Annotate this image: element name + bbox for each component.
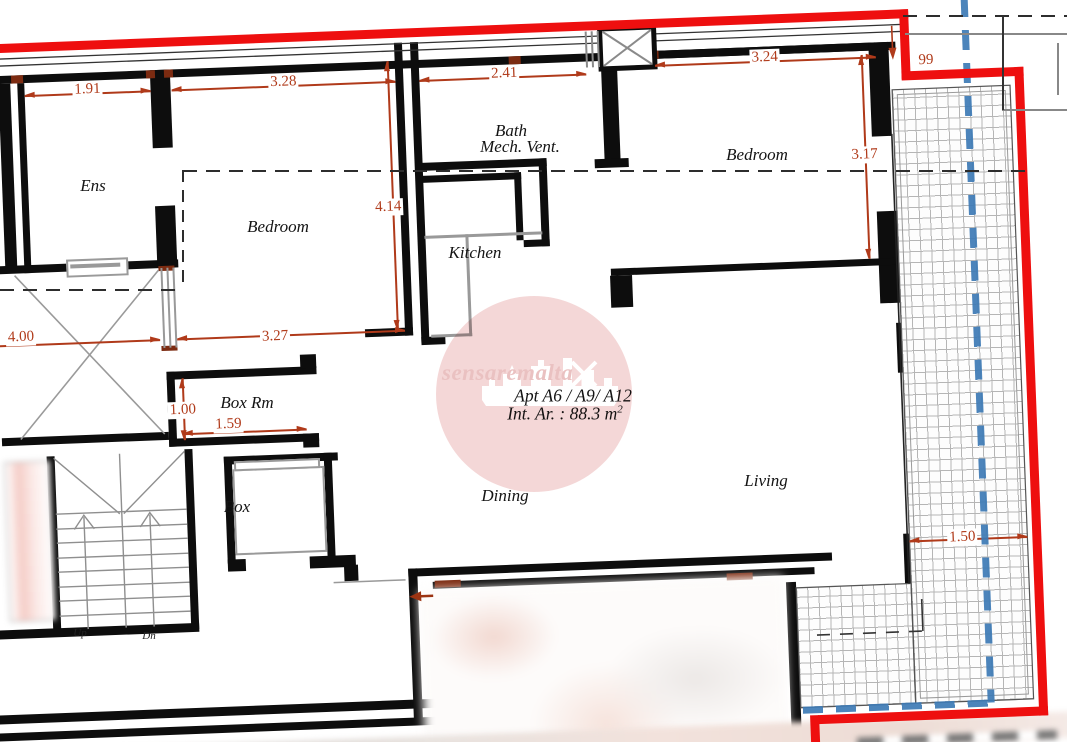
section-line-dashed-left (0, 289, 178, 291)
dimension-arrow (150, 336, 160, 342)
dimension-arrow (177, 335, 187, 341)
dimension-arrow (394, 320, 400, 330)
dimension-label-d150: 1.50 (947, 528, 978, 546)
dimension-arrow (140, 87, 150, 93)
dimension-arrow (297, 426, 307, 432)
dimension-arrow (858, 55, 864, 65)
dimension-arrow (171, 86, 181, 92)
dimension-arrow (576, 71, 586, 77)
section-line-dashed (183, 170, 1031, 172)
dimension-arrow (866, 53, 876, 59)
dimension-label-d414: 4.14 (373, 198, 404, 216)
dimension-arrow (419, 77, 429, 83)
floor-plan-canvas: 1.913.282.413.244.003.271.591.504.143.17… (0, 0, 1067, 742)
dimension-label-d328: 3.28 (268, 73, 299, 91)
dimension-label-d100: 1.00 (167, 401, 198, 419)
dimension-label-d317: 3.17 (849, 146, 880, 164)
dimension-arrow (179, 378, 185, 388)
dimension-arrow (655, 62, 665, 68)
dimension-arrow (1017, 533, 1027, 539)
dimension-label-d99: 99 (916, 52, 936, 70)
plan-linework (0, 0, 1067, 742)
stairs (54, 451, 192, 630)
dimension-label-d241: 2.41 (489, 65, 520, 83)
dimension-label-d324: 3.24 (749, 49, 780, 67)
dimension-arrow (865, 249, 871, 259)
neighbour-line-2 (1002, 109, 1067, 111)
dimension-label-d400: 4.00 (6, 328, 37, 346)
dimension-arrow (384, 61, 390, 71)
dimension-arrow (385, 78, 395, 84)
dimension-label-d191: 1.91 (72, 81, 103, 99)
dimension-label-d159: 1.59 (213, 415, 244, 433)
section-line-dashed-vertical (182, 170, 184, 290)
neighbour-line-1 (905, 33, 1067, 35)
dimension-label-d327: 3.27 (260, 328, 291, 346)
dimension-arrow (909, 537, 919, 543)
neighbour-line-vertical (1002, 16, 1004, 110)
plan-rotated-layer: 1.913.282.413.244.003.271.591.504.143.17… (0, 0, 1067, 742)
neighbour-dashed-line (903, 15, 1067, 17)
dimension-arrow (25, 92, 35, 98)
dimension-arrow (181, 430, 187, 440)
neighbour-line-vertical-2 (1057, 43, 1059, 95)
